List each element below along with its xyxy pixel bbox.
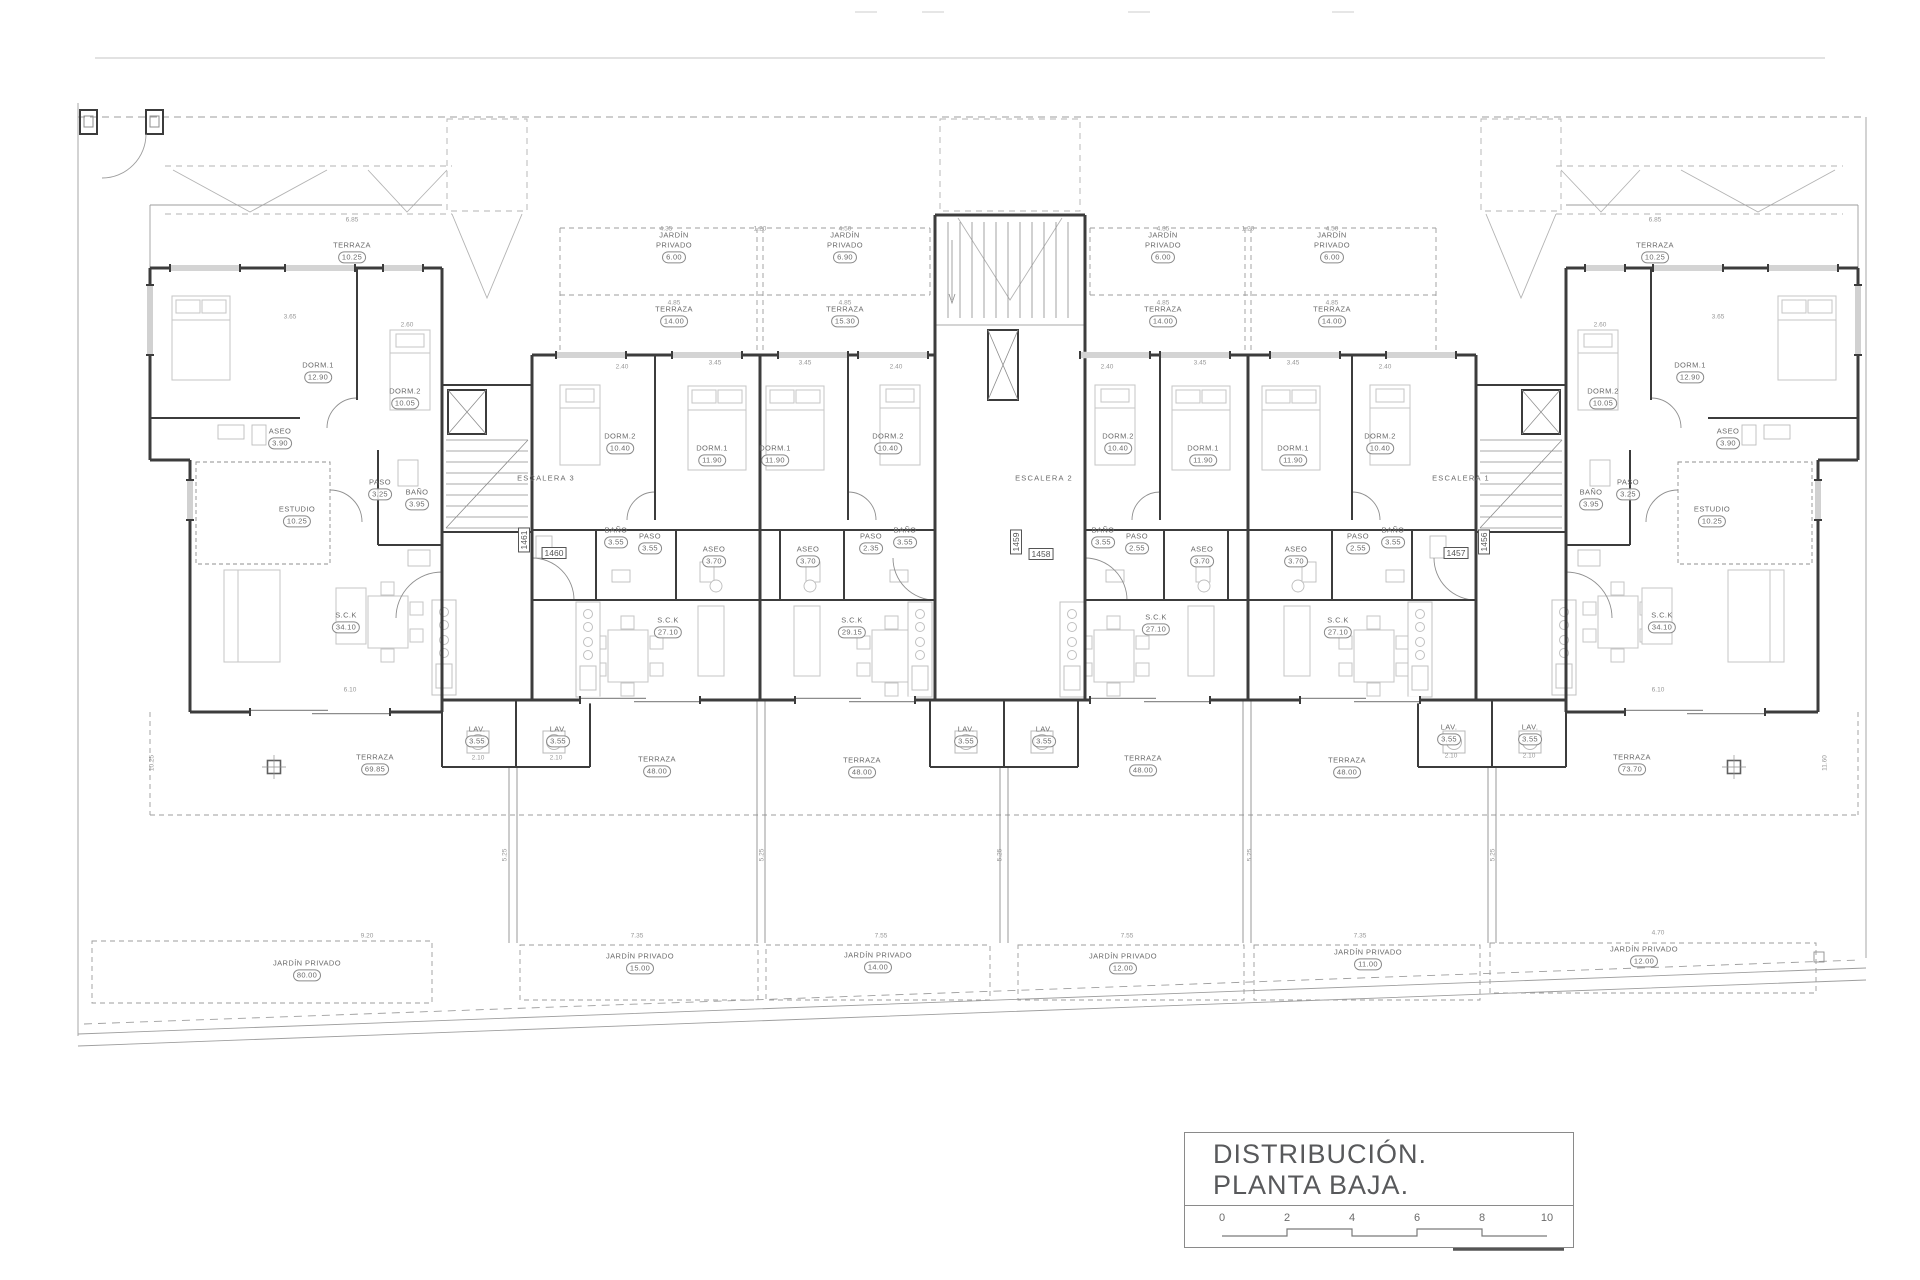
dimension-label: 10.25 [149, 755, 156, 771]
room-label: DORM.111.90 [1277, 443, 1309, 466]
unit-number-tag: 1461 [518, 528, 530, 553]
room-area-value: 69.85 [361, 764, 389, 776]
room-label: S.C.K34.10 [1648, 610, 1676, 633]
room-label: PASO2.55 [1346, 531, 1370, 554]
room-area-value: 10.25 [1641, 252, 1669, 264]
room-area-value: 29.15 [838, 627, 866, 639]
labels-layer: TERRAZA10.25JARDÍN PRIVADO6.00JARDÍN PRI… [0, 0, 1920, 1280]
room-area-value: 27.10 [1324, 627, 1352, 639]
dimension-label: 4.50 [839, 226, 852, 233]
room-area-value: 2.35 [859, 543, 883, 555]
room-area-value: 48.00 [848, 767, 876, 779]
room-label: LAV.3.55 [1518, 722, 1542, 745]
room-area-value: 15.30 [831, 316, 859, 328]
drawing-title: DISTRIBUCIÓN. PLANTA BAJA. [1213, 1139, 1427, 1201]
room-label: DORM.210.40 [604, 431, 636, 454]
dimension-label: 7.35 [631, 933, 644, 940]
dimension-label: 6.10 [1652, 687, 1665, 694]
room-label: TERRAZA15.30 [826, 304, 864, 327]
room-area-value: 14.00 [660, 316, 688, 328]
room-area-value: 3.70 [702, 556, 726, 568]
room-label: DORM.210.05 [389, 386, 421, 409]
room-area-value: 3.70 [1284, 556, 1308, 568]
room-area-value: 3.55 [1091, 537, 1115, 549]
room-label: DORM.210.40 [1102, 431, 1134, 454]
room-area-value: 11.90 [698, 455, 726, 467]
room-area-value: 10.40 [1104, 443, 1132, 455]
room-area-value: 10.05 [391, 398, 419, 410]
room-label: JARDÍN PRIVADO12.00 [1610, 944, 1678, 967]
room-label: S.C.K29.15 [838, 615, 866, 638]
room-area-value: 6.90 [833, 252, 857, 264]
unit-number-tag: 1459 [1010, 530, 1022, 555]
room-label: ASEO3.70 [1284, 544, 1308, 567]
stair-label: ESCALERA 3 [517, 474, 575, 483]
room-label: LAV.3.55 [1032, 724, 1056, 747]
dimension-label: 2.60 [401, 322, 414, 329]
room-area-value: 48.00 [643, 766, 671, 778]
room-label: TERRAZA14.00 [655, 304, 693, 327]
dimension-label: 7.55 [1121, 933, 1134, 940]
room-area-value: 11.00 [1354, 959, 1382, 971]
room-label: ESTUDIO10.25 [279, 504, 315, 527]
dimension-label: 2.10 [550, 755, 563, 762]
room-area-value: 14.00 [864, 962, 892, 974]
room-label: BAÑO3.55 [893, 525, 917, 548]
room-label: PASO3.25 [1616, 477, 1640, 500]
room-label: TERRAZA48.00 [843, 755, 881, 778]
dimension-label: 4.50 [1326, 226, 1339, 233]
dimension-label: 2.10 [472, 755, 485, 762]
room-label: S.C.K34.10 [332, 610, 360, 633]
room-area-value: 48.00 [1129, 765, 1157, 777]
room-area-value: 3.55 [1032, 736, 1056, 748]
room-label: ASEO3.70 [796, 544, 820, 567]
room-area-value: 15.00 [626, 963, 654, 975]
dimension-label: 4.70 [1652, 930, 1665, 937]
dimension-label: 4.85 [1326, 300, 1339, 307]
room-label: S.C.K27.10 [1324, 615, 1352, 638]
dimension-label: 4.85 [1157, 300, 1170, 307]
room-label: BAÑO3.55 [1091, 525, 1115, 548]
dimension-label: 5.25 [997, 849, 1004, 862]
room-area-value: 3.70 [1190, 556, 1214, 568]
room-area-value: 3.55 [1381, 537, 1405, 549]
room-area-value: 6.00 [662, 252, 686, 264]
room-area-value: 2.55 [1346, 543, 1370, 555]
room-label: TERRAZA14.00 [1313, 304, 1351, 327]
dimension-label: 4.85 [668, 300, 681, 307]
room-area-value: 3.55 [546, 736, 570, 748]
room-label: JARDÍN PRIVADO6.90 [827, 230, 863, 263]
room-area-value: 34.10 [332, 622, 360, 634]
room-area-value: 10.40 [606, 443, 634, 455]
room-label: ESTUDIO10.25 [1694, 504, 1730, 527]
dimension-label: 3.45 [709, 360, 722, 367]
room-area-value: 12.00 [1109, 963, 1137, 975]
room-label: DORM.210.05 [1587, 386, 1619, 409]
room-area-value: 3.55 [465, 736, 489, 748]
dimension-label: 2.60 [1594, 322, 1607, 329]
room-label: DORM.112.90 [1674, 360, 1706, 383]
dimension-label: 9.20 [361, 933, 374, 940]
dimension-label: 5.25 [759, 849, 766, 862]
room-label: JARDÍN PRIVADO15.00 [606, 951, 674, 974]
room-label: TERRAZA10.25 [1636, 240, 1674, 263]
room-area-value: 3.90 [1716, 438, 1740, 450]
room-area-value: 3.55 [893, 537, 917, 549]
dimension-label: 6.85 [1649, 217, 1662, 224]
room-area-value: 3.25 [368, 489, 392, 501]
room-label: JARDÍN PRIVADO6.00 [1314, 230, 1350, 263]
room-label: TERRAZA48.00 [1328, 755, 1366, 778]
dimension-label: 7.55 [875, 933, 888, 940]
room-area-value: 3.55 [1518, 734, 1542, 746]
room-label: S.C.K27.10 [654, 615, 682, 638]
room-area-value: 6.00 [1151, 252, 1175, 264]
room-label: BAÑO3.55 [1381, 525, 1405, 548]
room-label: JARDÍN PRIVADO11.00 [1334, 947, 1402, 970]
room-area-value: 10.40 [1366, 443, 1394, 455]
unit-number-tag: 1460 [542, 547, 567, 559]
dimension-label: 2.40 [1101, 364, 1114, 371]
room-area-value: 27.10 [654, 627, 682, 639]
title-block: DISTRIBUCIÓN. PLANTA BAJA. [1184, 1132, 1574, 1248]
dimension-label: 11.60 [1822, 755, 1829, 771]
dimension-label: 2.10 [1523, 753, 1536, 760]
dimension-label: 2.40 [1379, 364, 1392, 371]
stair-label: ESCALERA 1 [1432, 474, 1490, 483]
room-label: PASO3.25 [368, 477, 392, 500]
room-label: DORM.210.40 [872, 431, 904, 454]
room-area-value: 11.90 [1189, 455, 1217, 467]
room-label: DORM.112.90 [302, 360, 334, 383]
dimension-label: 5.25 [502, 849, 509, 862]
dimension-label: 7.35 [1354, 933, 1367, 940]
room-label: PASO3.55 [638, 531, 662, 554]
room-area-value: 6.00 [1320, 252, 1344, 264]
room-area-value: 10.40 [874, 443, 902, 455]
room-label: DORM.210.40 [1364, 431, 1396, 454]
room-area-value: 34.10 [1648, 622, 1676, 634]
room-area-value: 27.10 [1142, 624, 1170, 636]
room-label: DORM.111.90 [696, 443, 728, 466]
dimension-label: 5.25 [1247, 849, 1254, 862]
dimension-label: 3.45 [1287, 360, 1300, 367]
room-area-value: 14.00 [1318, 316, 1346, 328]
room-label: PASO2.55 [1125, 531, 1149, 554]
room-area-value: 10.05 [1589, 398, 1617, 410]
dimension-label: 6.10 [344, 687, 357, 694]
room-label: PASO2.35 [859, 531, 883, 554]
room-area-value: 48.00 [1333, 767, 1361, 779]
room-area-value: 3.95 [405, 499, 429, 511]
floorplan-sheet: TERRAZA10.25JARDÍN PRIVADO6.00JARDÍN PRI… [0, 0, 1920, 1280]
room-area-value: 12.90 [304, 372, 332, 384]
dimension-label: 3.65 [1712, 314, 1725, 321]
room-label: ASEO3.90 [268, 426, 292, 449]
room-label: BAÑO3.55 [604, 525, 628, 548]
room-label: TERRAZA14.00 [1144, 304, 1182, 327]
room-area-value: 11.90 [761, 455, 789, 467]
dimension-label: 6.85 [346, 217, 359, 224]
room-area-value: 10.25 [338, 252, 366, 264]
room-area-value: 12.00 [1630, 956, 1658, 968]
dimension-label: 1.20 [754, 226, 767, 233]
room-area-value: 73.70 [1618, 764, 1646, 776]
room-label: LAV.3.55 [546, 724, 570, 747]
room-area-value: 80.00 [293, 970, 321, 982]
room-label: BAÑO3.95 [1579, 487, 1603, 510]
room-label: JARDÍN PRIVADO80.00 [273, 958, 341, 981]
dimension-label: 3.45 [1194, 360, 1207, 367]
room-area-value: 12.90 [1676, 372, 1704, 384]
unit-number-tag: 1456 [1478, 530, 1490, 555]
room-label: ASEO3.90 [1716, 426, 1740, 449]
dimension-label: 4.35 [660, 226, 673, 233]
room-area-value: 3.95 [1579, 499, 1603, 511]
dimension-label: 3.65 [284, 314, 297, 321]
room-label: LAV.3.55 [465, 724, 489, 747]
stair-label: ESCALERA 2 [1015, 474, 1073, 483]
title-line-2: PLANTA BAJA. [1213, 1170, 1427, 1201]
dimension-label: 2.40 [616, 364, 629, 371]
room-label: TERRAZA10.25 [333, 240, 371, 263]
room-label: ASEO3.70 [1190, 544, 1214, 567]
room-label: JARDÍN PRIVADO12.00 [1089, 951, 1157, 974]
room-label: LAV.3.55 [1437, 722, 1461, 745]
room-label: LAV.3.55 [954, 724, 978, 747]
room-label: DORM.111.90 [1187, 443, 1219, 466]
dimension-label: 4.85 [839, 300, 852, 307]
dimension-label: 3.45 [799, 360, 812, 367]
room-label: TERRAZA69.85 [356, 752, 394, 775]
room-area-value: 3.70 [796, 556, 820, 568]
room-area-value: 2.55 [1125, 543, 1149, 555]
dimension-label: 1.20 [1242, 226, 1255, 233]
room-area-value: 3.25 [1616, 489, 1640, 501]
room-label: TERRAZA73.70 [1613, 752, 1651, 775]
title-divider [1185, 1205, 1573, 1206]
room-area-value: 3.55 [638, 543, 662, 555]
unit-number-tag: 1457 [1444, 547, 1469, 559]
dimension-label: 2.40 [890, 364, 903, 371]
room-label: JARDÍN PRIVADO6.00 [656, 230, 692, 263]
title-line-1: DISTRIBUCIÓN. [1213, 1139, 1427, 1170]
room-area-value: 10.25 [283, 516, 311, 528]
room-area-value: 10.25 [1698, 516, 1726, 528]
room-label: JARDÍN PRIVADO14.00 [844, 950, 912, 973]
room-label: BAÑO3.95 [405, 487, 429, 510]
room-area-value: 3.55 [1437, 734, 1461, 746]
room-area-value: 11.90 [1279, 455, 1307, 467]
room-label: TERRAZA48.00 [638, 754, 676, 777]
room-area-value: 3.55 [954, 736, 978, 748]
room-label: TERRAZA48.00 [1124, 753, 1162, 776]
room-label: S.C.K27.10 [1142, 612, 1170, 635]
room-area-value: 3.90 [268, 438, 292, 450]
dimension-label: 5.25 [1490, 849, 1497, 862]
dimension-label: 4.35 [1157, 226, 1170, 233]
room-label: ASEO3.70 [702, 544, 726, 567]
room-area-value: 3.55 [604, 537, 628, 549]
room-label: DORM.111.90 [759, 443, 791, 466]
dimension-label: 2.10 [1445, 753, 1458, 760]
unit-number-tag: 1458 [1029, 548, 1054, 560]
room-label: JARDÍN PRIVADO6.00 [1145, 230, 1181, 263]
room-area-value: 14.00 [1149, 316, 1177, 328]
